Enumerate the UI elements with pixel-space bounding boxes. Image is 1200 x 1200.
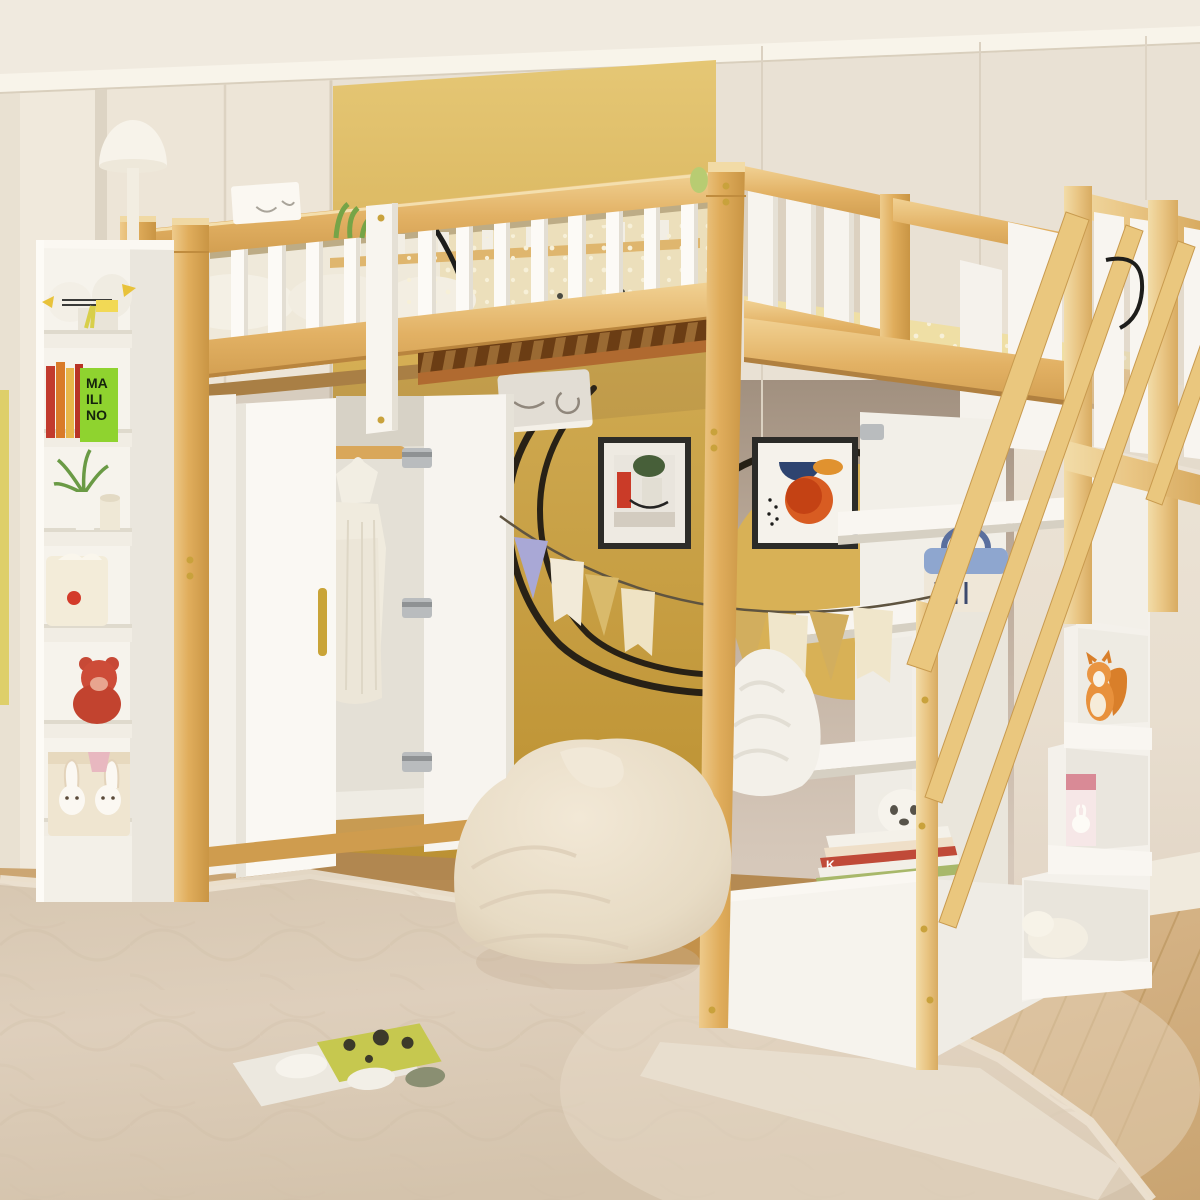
svg-text:NO: NO <box>86 407 107 423</box>
svg-text:ILI: ILI <box>86 391 102 407</box>
svg-text:MA: MA <box>86 375 108 391</box>
